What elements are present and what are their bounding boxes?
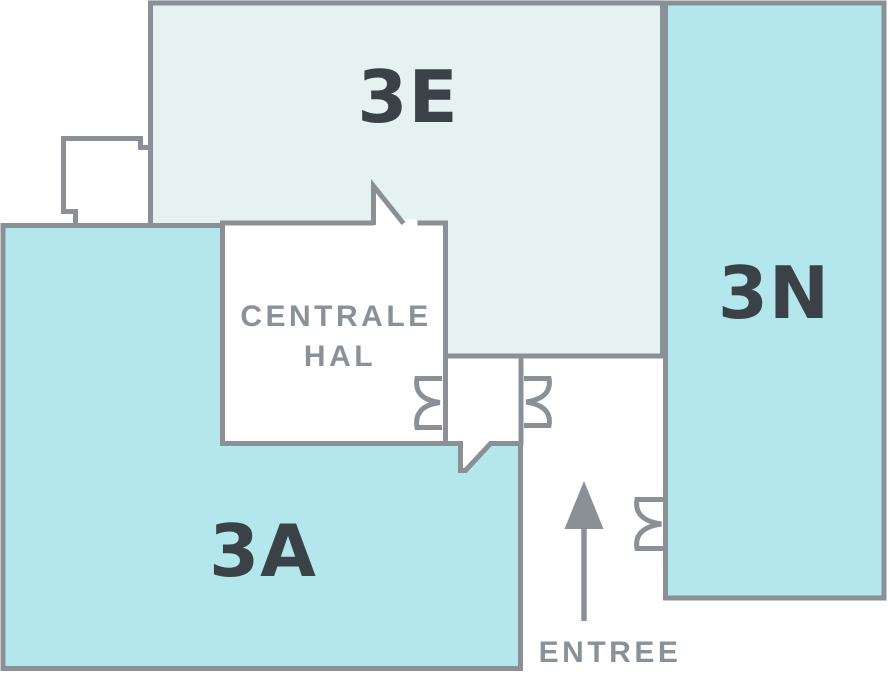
entrance-arrow-icon	[565, 481, 604, 621]
room-3n-label: 3N	[718, 251, 830, 335]
centrale-hal-floor	[223, 223, 446, 444]
room-3e-label: 3E	[357, 55, 458, 139]
annex-room-wall	[64, 139, 151, 228]
floor-plan: 3E 3N 3A CENTRALE HAL ENTREE	[0, 0, 889, 673]
centrale-hal-label-line2: HAL	[304, 340, 376, 373]
double-door-icon-3n	[637, 500, 664, 549]
double-door-icon-corridor	[524, 379, 549, 426]
entrance-label: ENTREE	[539, 636, 682, 669]
floor-plan-canvas: 3E 3N 3A CENTRALE HAL ENTREE	[0, 0, 889, 673]
centrale-hal-label-line1: CENTRALE	[240, 300, 431, 333]
room-3a-label: 3A	[209, 509, 317, 593]
